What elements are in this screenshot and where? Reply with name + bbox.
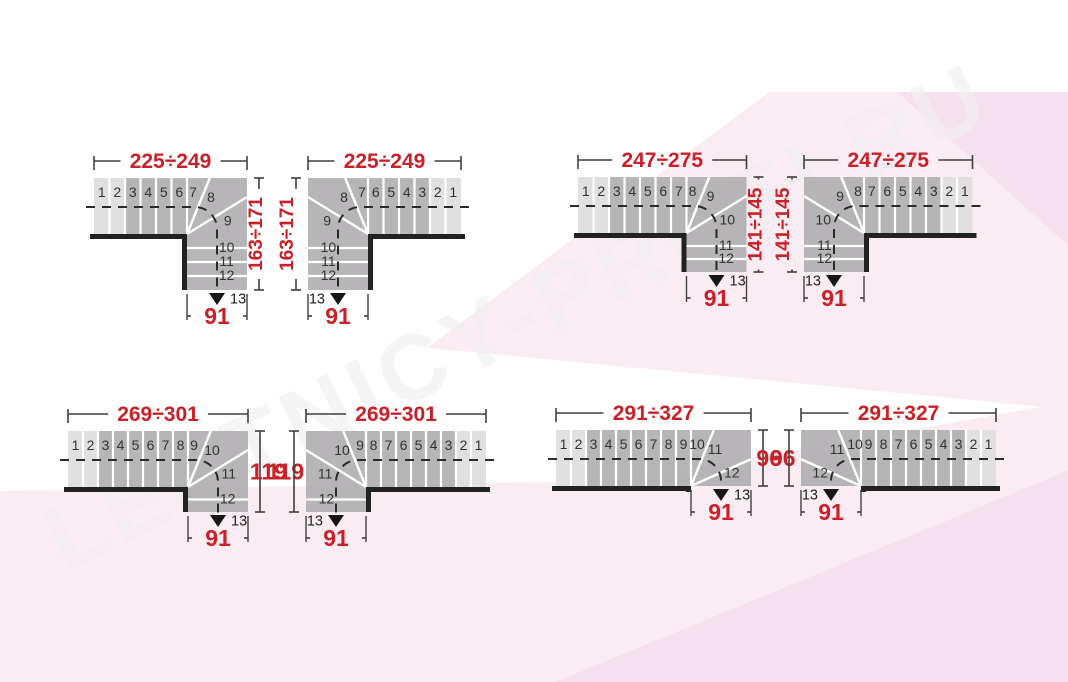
wall-line (574, 236, 684, 273)
label: 247÷275 (847, 149, 929, 172)
label: 2 (575, 436, 583, 452)
stair-diagram-1: 12345678910111213225÷249163÷17191 (86, 150, 267, 329)
label: 6 (910, 436, 918, 452)
label: 247÷275 (621, 149, 703, 172)
label: 9 (323, 213, 331, 229)
label: 6 (883, 183, 891, 199)
label: 91 (818, 499, 844, 525)
label: 12 (817, 250, 833, 266)
label: 4 (430, 437, 438, 453)
wall-line (867, 236, 977, 273)
label: 2 (113, 184, 121, 200)
label: 1 (985, 436, 993, 452)
stair-diagram-4: 12345678910111213247÷275141÷14591 (773, 149, 981, 311)
label: 4 (117, 437, 125, 453)
label: 1 (98, 184, 106, 200)
label: 11 (708, 441, 723, 457)
label: 225÷249 (130, 150, 212, 173)
label: 91 (708, 499, 734, 525)
label: 2 (597, 183, 605, 199)
label: 10 (720, 212, 736, 228)
label: 6 (372, 184, 380, 200)
wall-line (90, 237, 185, 291)
label: 4 (144, 184, 152, 200)
label: 12 (812, 465, 828, 481)
label: 4 (403, 184, 411, 200)
label: 91 (821, 285, 847, 311)
wall-line (369, 490, 491, 513)
label: 4 (940, 436, 948, 452)
label: 8 (370, 437, 378, 453)
label: 13 (805, 274, 821, 290)
label: 6 (400, 437, 408, 453)
label: 13 (307, 514, 323, 530)
label: 13 (231, 514, 247, 530)
label: 96 (756, 445, 782, 471)
label: 91 (205, 525, 231, 551)
label: 9 (356, 437, 364, 453)
label: 5 (644, 183, 652, 199)
label: 5 (620, 436, 628, 452)
label: 6 (175, 184, 183, 200)
label: 11 (222, 466, 237, 482)
label: 8 (689, 183, 697, 199)
label: 3 (613, 183, 621, 199)
label: 1 (961, 183, 969, 199)
label: 163÷171 (277, 197, 298, 271)
label: 5 (925, 436, 933, 452)
label: 91 (204, 303, 230, 329)
label: 6 (147, 437, 155, 453)
label: 10 (815, 212, 831, 228)
stair-diagram-6: 12345678910111213269÷30111991 (250, 403, 494, 551)
label: 3 (418, 184, 426, 200)
label: 12 (718, 250, 734, 266)
label: 269÷301 (355, 403, 437, 426)
label: 12 (319, 491, 335, 507)
label: 1 (72, 437, 80, 453)
label: 11 (318, 466, 333, 482)
label: 10 (204, 442, 220, 458)
label: 12 (321, 267, 337, 283)
label: 5 (415, 437, 423, 453)
label: 3 (590, 436, 598, 452)
label: 8 (665, 436, 673, 452)
label: 91 (325, 303, 351, 329)
label: 91 (323, 525, 349, 551)
wall-line (371, 237, 466, 291)
label: 8 (177, 437, 185, 453)
label: 225÷249 (344, 150, 426, 173)
label: 13 (230, 292, 246, 308)
label: 1 (582, 183, 590, 199)
label: 10 (334, 442, 350, 458)
label: 91 (704, 285, 730, 311)
label: 2 (434, 184, 442, 200)
label: 6 (659, 183, 667, 199)
stair-plans-canvas: LESTNICY-PROFI.RU LESTNICY-PROFI.RU 1234… (0, 0, 1068, 682)
label: 291÷327 (858, 402, 940, 425)
label: 3 (445, 437, 453, 453)
label: 119 (250, 459, 287, 485)
label: 3 (129, 184, 137, 200)
label: 12 (724, 465, 740, 481)
label: 9 (707, 188, 715, 204)
label: 7 (650, 436, 658, 452)
label: 9 (190, 437, 198, 453)
label: 5 (132, 437, 140, 453)
label: 5 (160, 184, 168, 200)
label: 8 (207, 189, 215, 205)
label: 10 (689, 436, 705, 452)
label: 12 (220, 491, 236, 507)
label: 8 (880, 436, 888, 452)
label: 141÷145 (746, 187, 767, 261)
label: 7 (189, 184, 197, 200)
wall-line (552, 489, 689, 493)
label: 163÷171 (246, 197, 267, 271)
label: 11 (830, 441, 845, 457)
label: 13 (734, 488, 750, 504)
label: 13 (309, 292, 325, 308)
label: 269÷301 (117, 403, 199, 426)
label: 1 (475, 437, 483, 453)
stair-diagram-2: 12345678910111213225÷249163÷17191 (277, 150, 469, 329)
label: 10 (847, 436, 863, 452)
label: 7 (358, 184, 366, 200)
stair-diagrams-svg: 12345678910111213225÷249163÷171911234567… (0, 0, 1068, 682)
label: 13 (802, 488, 818, 504)
label: 9 (680, 436, 688, 452)
label: 291÷327 (613, 402, 695, 425)
label: 8 (854, 183, 862, 199)
label: 3 (955, 436, 963, 452)
label: 4 (628, 183, 636, 199)
label: 6 (635, 436, 643, 452)
wall-line (64, 490, 186, 513)
label: 3 (102, 437, 110, 453)
stair-diagram-3: 12345678910111213247÷275141÷14591 (570, 149, 767, 311)
label: 9 (836, 188, 844, 204)
label: 7 (385, 437, 393, 453)
label: 2 (87, 437, 95, 453)
label: 7 (675, 183, 683, 199)
label: 9 (224, 213, 232, 229)
label: 1 (560, 436, 568, 452)
label: 9 (865, 436, 873, 452)
label: 2 (945, 183, 953, 199)
label: 4 (605, 436, 613, 452)
label: 2 (970, 436, 978, 452)
label: 7 (895, 436, 903, 452)
label: 1 (449, 184, 457, 200)
label: 5 (899, 183, 907, 199)
label: 3 (930, 183, 938, 199)
label: 8 (340, 189, 348, 205)
label: 7 (162, 437, 170, 453)
wall-line (864, 489, 1001, 493)
label: 13 (730, 274, 746, 290)
label: 4 (914, 183, 922, 199)
label: 7 (868, 183, 876, 199)
label: 141÷145 (773, 187, 794, 261)
label: 5 (387, 184, 395, 200)
label: 12 (219, 267, 235, 283)
label: 2 (460, 437, 468, 453)
